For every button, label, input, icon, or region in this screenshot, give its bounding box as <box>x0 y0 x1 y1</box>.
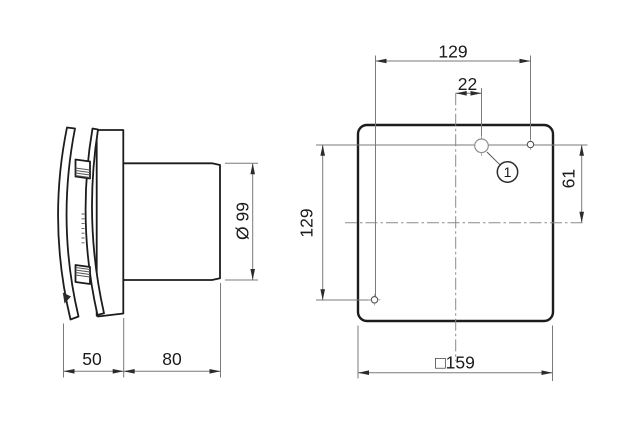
arrow-right-icon <box>520 59 531 64</box>
dim-159-label: □159 <box>435 352 475 372</box>
small-hole-circle <box>371 297 377 303</box>
mounting-hole-circle <box>475 139 489 153</box>
arrow-right-icon <box>113 369 124 374</box>
dim-duct-diameter: Ø 99 <box>225 163 258 280</box>
arrow-up-icon <box>579 145 584 156</box>
dim-depth-duct-label: 80 <box>162 349 182 369</box>
housing-front-bezel <box>86 129 104 316</box>
dim-panel-size: □159 <box>358 352 553 375</box>
arrow-right-icon <box>210 369 221 374</box>
arrow-left-icon <box>124 369 135 374</box>
dim-depth-cover-label: 50 <box>82 349 102 369</box>
front-view: 129 22 129 61 □159 <box>297 41 588 381</box>
arrow-left-icon <box>358 370 369 375</box>
dim-129-top-label: 129 <box>438 41 467 61</box>
arrow-left-icon <box>376 59 387 64</box>
front-cover-outline <box>58 128 78 320</box>
fan-dimension-drawing: Ø 99 50 80 129 <box>0 0 640 421</box>
embossed-logo-marks <box>82 214 85 243</box>
arrow-down-icon <box>250 269 255 280</box>
technical-drawing-canvas: Ø 99 50 80 129 <box>0 0 640 421</box>
arrow-up-icon <box>320 145 325 156</box>
arrow-up-icon <box>250 163 255 174</box>
small-hole-circle <box>527 141 533 147</box>
duct-outline <box>123 163 220 280</box>
dim-duct-diameter-label: Ø 99 <box>232 202 252 240</box>
side-view: Ø 99 50 80 <box>58 128 258 378</box>
dim-hole-span-vertical: 129 <box>297 145 326 301</box>
arrow-down-icon <box>320 289 325 300</box>
arrow-left-icon <box>64 369 75 374</box>
dim-22-label: 22 <box>458 74 477 94</box>
dim-hole-to-centerline: 61 <box>559 145 585 223</box>
arrow-right-icon <box>542 370 553 375</box>
dim-hole-center-offset: 22 <box>456 74 482 96</box>
dim-61-label: 61 <box>559 169 579 188</box>
arrow-down-icon <box>579 212 584 223</box>
callout-label: 1 <box>504 164 512 180</box>
dim-depths: 50 80 <box>64 283 221 378</box>
dim-hole-span-horizontal: 129 <box>376 41 531 63</box>
dim-129-left-label: 129 <box>297 208 317 237</box>
